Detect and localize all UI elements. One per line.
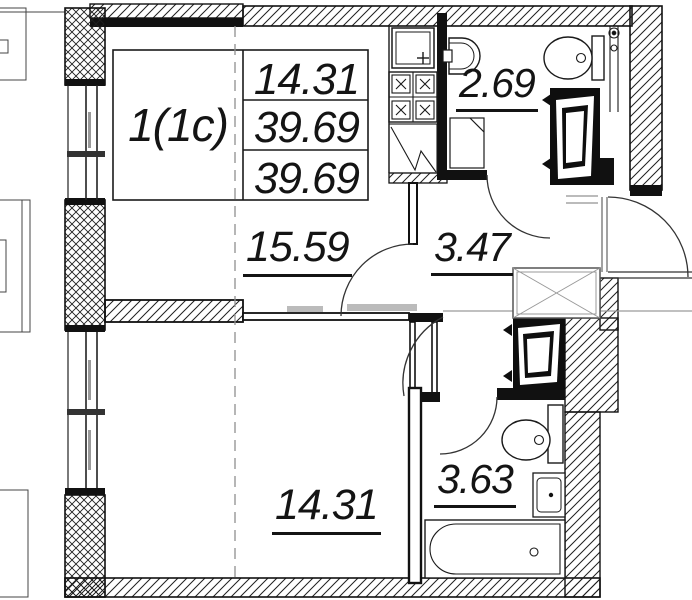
room-area-bathroom: 3.63 xyxy=(434,459,516,508)
door-track xyxy=(347,304,417,311)
interior-wall-middle xyxy=(105,300,243,322)
floor-plan: 1(1c) 14.31 39.69 39.69 15.59 2.69 3.47 … xyxy=(0,0,692,600)
entrance-door xyxy=(566,196,692,278)
room-area-hall: 3.47 xyxy=(431,227,513,276)
unit-label: 1(1c) xyxy=(115,52,241,198)
window-living xyxy=(67,85,105,200)
pipe-riser xyxy=(609,26,619,112)
table-total-area: 39.69 xyxy=(247,106,359,150)
table-living-area: 14.31 xyxy=(247,58,359,102)
room-area-living-kitchen: 15.59 xyxy=(243,226,352,277)
exterior-wall-top xyxy=(90,4,632,27)
wc-south-wall xyxy=(437,170,487,180)
room-area-wc: 2.69 xyxy=(456,63,538,112)
washing-machine xyxy=(450,118,484,168)
window-bedroom xyxy=(67,332,105,488)
entry-mat-x xyxy=(513,268,600,318)
room-area-bedroom: 14.31 xyxy=(272,484,381,535)
exterior-wall-bottom xyxy=(65,578,600,597)
stove xyxy=(389,72,437,122)
wc-toilet xyxy=(544,36,604,80)
table-total-area-declared: 39.69 xyxy=(247,157,359,201)
vent-shaft-2 xyxy=(503,318,565,390)
bathroom-toilet xyxy=(502,405,563,463)
vent-shaft-1 xyxy=(542,88,600,185)
bathroom-sink xyxy=(533,473,565,517)
fridge-niche xyxy=(389,124,437,173)
bathtub xyxy=(425,520,565,578)
neighbor-outlines xyxy=(0,8,65,597)
door-track xyxy=(287,306,323,312)
kitchen-sink xyxy=(392,28,434,68)
kitchen-counter xyxy=(389,26,437,173)
door-bathroom-arc xyxy=(440,397,497,454)
bathroom-west-wall xyxy=(409,388,421,583)
exterior-wall-left xyxy=(65,8,105,597)
kitchen-wc-wall xyxy=(437,13,447,175)
